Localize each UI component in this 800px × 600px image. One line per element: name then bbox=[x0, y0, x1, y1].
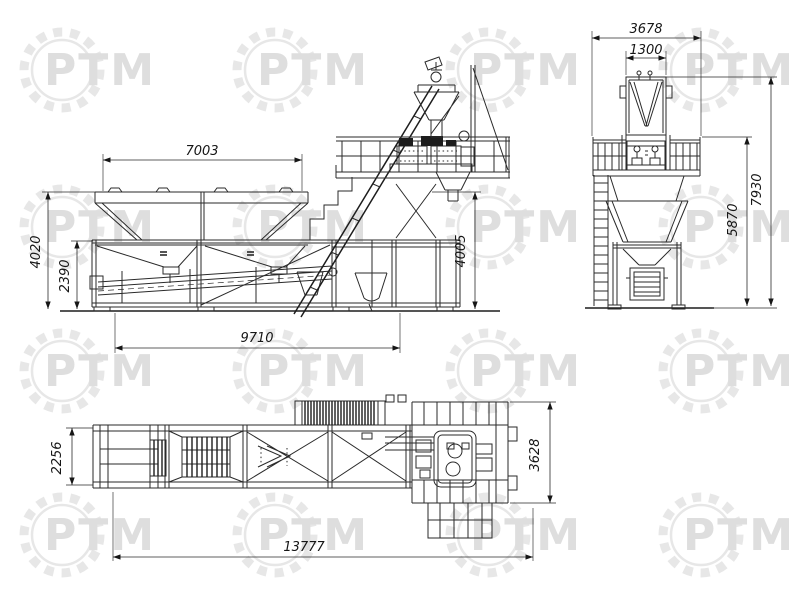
watermark-text: РТМ bbox=[683, 510, 795, 561]
watermark: РТМ bbox=[24, 32, 156, 108]
dim-label: 7930 bbox=[750, 173, 765, 206]
watermark-text: РТМ bbox=[683, 346, 795, 397]
watermark: РТМ bbox=[450, 189, 582, 265]
platform-front bbox=[593, 137, 700, 176]
mixer-port-2 bbox=[446, 462, 460, 476]
dim-label: 3678 bbox=[629, 22, 662, 37]
discharge-chute bbox=[297, 272, 323, 295]
dim-chassis-width: 2256 bbox=[50, 428, 93, 485]
watermark-text: РТМ bbox=[470, 346, 582, 397]
dim-label: 9710 bbox=[240, 331, 273, 346]
frame-brace bbox=[201, 245, 330, 305]
watermark: РТМ bbox=[663, 32, 795, 108]
watermark-text: РТМ bbox=[44, 45, 156, 96]
dim-skip-width: 1300 bbox=[626, 43, 666, 75]
watermark-text: РТМ bbox=[257, 346, 369, 397]
vibrator-marks bbox=[160, 252, 254, 255]
dim-bins-top-width: 7003 bbox=[103, 144, 302, 191]
mixer-port-1 bbox=[448, 444, 462, 458]
watermark-text: РТМ bbox=[44, 346, 156, 397]
skip-bolt-left bbox=[637, 71, 641, 75]
dimension-annotations: 7003 4020 2390 9710 4005 3678 bbox=[29, 22, 777, 561]
watermark-text: РТМ bbox=[683, 45, 795, 96]
watermark: РТМ bbox=[663, 333, 795, 409]
dust-pipe bbox=[459, 131, 469, 141]
mixer-front bbox=[622, 135, 670, 170]
watermark-text: РТМ bbox=[470, 202, 582, 253]
dim-label: 4005 bbox=[454, 234, 469, 267]
mixer-valve-right bbox=[652, 146, 658, 152]
winch-pulley bbox=[431, 72, 441, 82]
dim-label: 4020 bbox=[29, 235, 44, 268]
access-ladder bbox=[594, 175, 608, 306]
dim-label: 13777 bbox=[283, 540, 325, 555]
belt-conveyor bbox=[90, 266, 332, 303]
mixer-valve-left bbox=[634, 146, 640, 152]
technical-drawing: РТМРТМРТМРТМРТМРТМРТМРТМРТМРТМРТМРТМРТМР… bbox=[0, 0, 800, 600]
chassis-plan bbox=[93, 425, 412, 488]
dim-label: 5870 bbox=[726, 203, 741, 236]
dim-label: 7003 bbox=[185, 144, 218, 159]
watermark: РТМ bbox=[450, 32, 582, 108]
watermark: РТМ bbox=[237, 189, 369, 265]
skip-bolt-right bbox=[648, 71, 652, 75]
dim-label: 3628 bbox=[528, 438, 543, 471]
incline-conveyor-slats bbox=[305, 401, 374, 425]
skip-bucket bbox=[355, 273, 387, 311]
conveyor-centerline bbox=[98, 275, 332, 291]
watermark: РТМ bbox=[237, 497, 369, 573]
watermark: РТМ bbox=[450, 333, 582, 409]
support-x-brace bbox=[396, 184, 436, 238]
watermark: РТМ bbox=[24, 497, 156, 573]
dim-label: 1300 bbox=[629, 43, 662, 58]
watermark: РТМ bbox=[24, 333, 156, 409]
mixer-housing-plan bbox=[434, 431, 476, 487]
watermark-text: РТМ bbox=[470, 45, 582, 96]
dim-label: 2256 bbox=[50, 441, 65, 474]
watermark: РТМ bbox=[663, 497, 795, 573]
hopper-outlet-plan bbox=[247, 432, 328, 481]
watermark: РТМ bbox=[237, 32, 369, 108]
frame-bay-brace-plan bbox=[332, 432, 406, 481]
watermark-text: РТМ bbox=[257, 45, 369, 96]
watermark-text: РТМ bbox=[470, 510, 582, 561]
watermark-text: РТМ bbox=[44, 510, 156, 561]
watermark: РТМ bbox=[450, 497, 582, 573]
dim-label: 2390 bbox=[58, 259, 73, 292]
